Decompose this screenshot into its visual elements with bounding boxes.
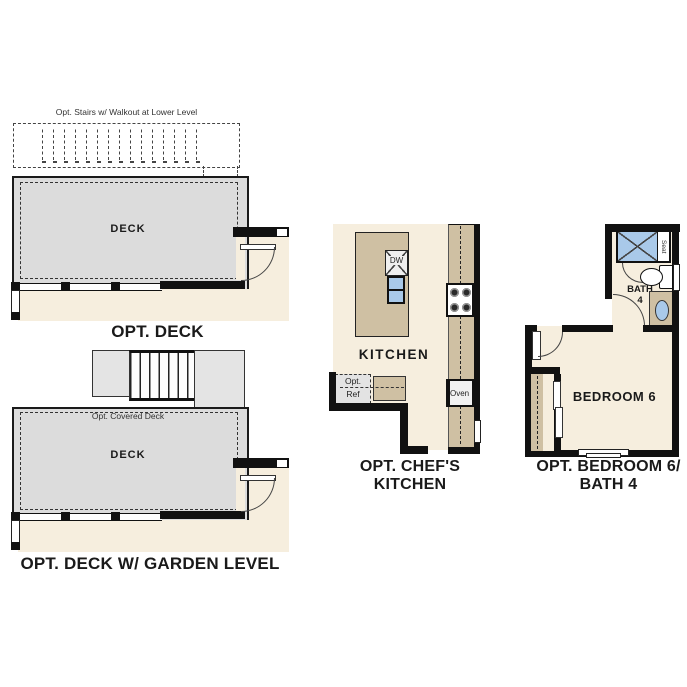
railing-post — [61, 512, 70, 520]
stair-landing-left — [92, 350, 131, 397]
bedroom-right-wall — [672, 224, 679, 457]
kitchen-left-wall — [329, 372, 336, 405]
title-line2: BATH 4 — [516, 476, 687, 494]
deck-railing — [12, 283, 162, 291]
burner — [450, 288, 459, 297]
kitchen-label: KITCHEN — [333, 347, 455, 362]
window-icon — [673, 264, 680, 291]
shower-pan — [618, 232, 657, 261]
sink-basin — [389, 291, 403, 302]
window-icon — [474, 420, 481, 443]
bath-top-wall — [605, 224, 680, 232]
plan-title-bedroom6-bath4: OPT. BEDROOM 6/ BATH 4 — [516, 458, 687, 494]
closet-stub-wall — [525, 367, 560, 374]
shower-icon: Seat — [616, 230, 671, 263]
sink-icon — [387, 276, 405, 304]
deck-bottom-wall — [160, 281, 245, 289]
ref-label-line2: Ref — [336, 388, 370, 401]
window-icon — [11, 520, 20, 544]
window-icon — [11, 290, 20, 314]
stairs-tread-hooks — [42, 161, 206, 163]
railing-post — [111, 512, 120, 520]
kitchen-wall — [329, 403, 408, 411]
oven-icon: Oven — [446, 379, 474, 407]
stairs-treads-icon — [42, 127, 206, 162]
plan-title-chefs-kitchen: OPT. CHEF'S KITCHEN — [330, 458, 490, 494]
dishwasher-label: DW — [385, 256, 408, 265]
dishwasher-label-text: DW — [389, 256, 404, 265]
railing-post — [111, 282, 120, 290]
closet-door-panel — [555, 407, 563, 438]
plan-title-opt-deck: OPT. DECK — [60, 322, 255, 342]
bedroom-top-wall — [643, 325, 673, 332]
patio-floor — [18, 518, 289, 552]
oven-label: Oven — [450, 389, 469, 398]
floorplan-sheet: Opt. Stairs w/ Walkout at Lower Level DE… — [0, 0, 687, 687]
title-line1: OPT. BEDROOM 6/ — [516, 458, 687, 476]
deck-bottom-wall — [160, 511, 245, 519]
kitchen-wall — [400, 446, 428, 454]
seat-label: Seat — [660, 240, 667, 253]
vanity-sink-icon — [655, 300, 669, 321]
deck-dashed-edge — [20, 412, 238, 510]
wall-cap — [11, 542, 20, 550]
bedroom-top-wall — [562, 325, 613, 332]
shower-seat: Seat — [657, 232, 669, 261]
burner — [462, 288, 471, 297]
sink-basin — [389, 278, 403, 289]
wall-end-marker — [277, 228, 287, 237]
stairs-treads-icon — [129, 350, 196, 401]
counter-centerline — [460, 226, 461, 444]
deck-label: DECK — [58, 449, 198, 461]
plan-title-deck-garden: OPT. DECK W/ GARDEN LEVEL — [0, 554, 300, 574]
wall-cap — [11, 283, 20, 290]
title-line1: OPT. CHEF'S — [330, 458, 490, 476]
deck-label: DECK — [58, 223, 198, 235]
patio-floor — [18, 287, 289, 321]
railing-post — [61, 282, 70, 290]
cooktop-icon — [446, 283, 474, 317]
counter-stub — [373, 376, 406, 401]
counter-dashed-line — [340, 387, 404, 388]
covered-deck-note: Opt. Covered Deck — [38, 411, 218, 421]
opt-stairs-note: Opt. Stairs w/ Walkout at Lower Level — [13, 107, 240, 117]
kitchen-counter — [448, 224, 475, 447]
deck-railing — [12, 513, 162, 521]
opt-ref-icon: Opt. Ref — [335, 374, 371, 404]
wall-end-marker — [277, 459, 287, 468]
wall-cap — [11, 312, 20, 320]
title-line2: KITCHEN — [330, 476, 490, 494]
burner — [462, 303, 471, 312]
burner — [450, 303, 459, 312]
bedroom-label: BEDROOM 6 — [548, 389, 681, 404]
wall-cap — [11, 513, 20, 520]
bath-left-wall — [605, 224, 612, 299]
closet-rod-dashed — [537, 376, 538, 449]
stair-landing-right — [194, 350, 245, 408]
